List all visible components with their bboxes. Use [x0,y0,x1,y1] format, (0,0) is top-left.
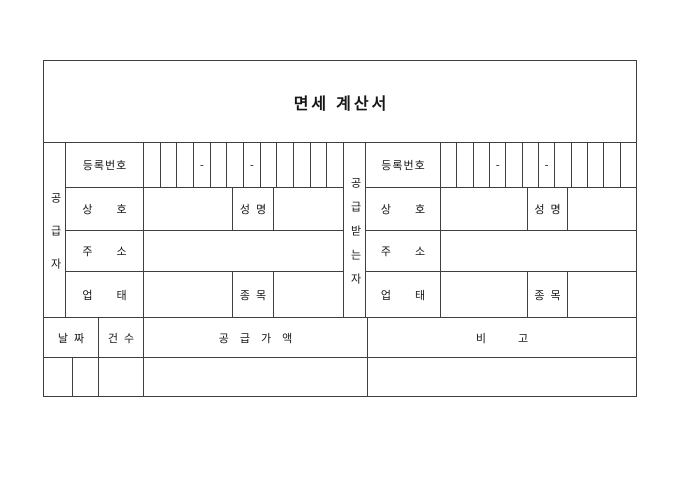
supplier-business-type-row: 업태 종목 [66,272,343,317]
recipient-address-row: 주소 [366,231,636,273]
supplier-trade-name-row: 상호 성명 [66,188,343,231]
supplier-business-type-label: 업태 [66,272,144,317]
reg-digit-cell[interactable] [505,143,521,187]
reg-digit-cell[interactable] [210,143,227,187]
supplier-section: 공급자 등록번호 -- 상호 성명 [44,143,344,317]
recipient-reg-number-label: 등록번호 [366,143,441,187]
reg-digit-cell[interactable] [554,143,570,187]
recipient-address-label: 주소 [366,231,441,272]
supplier-address-value[interactable] [144,231,343,272]
recipient-section: 공급받는자 등록번호 -- 상호 성명 [344,143,636,317]
date-column-header: 날짜 [44,318,99,357]
supplier-reg-number-label: 등록번호 [66,143,144,187]
supplier-item-value[interactable] [274,272,343,317]
reg-digit-cell[interactable] [441,143,456,187]
date-day-cell[interactable] [73,358,99,396]
supplier-name-label: 성명 [233,188,274,230]
reg-digit-dash-cell[interactable]: - [489,143,505,187]
supplier-reg-number-row: 등록번호 -- [66,143,343,188]
reg-digit-cell[interactable] [260,143,277,187]
recipient-side-label: 공급받는자 [349,177,360,297]
supplier-trade-name-value[interactable] [144,188,233,230]
reg-digit-dash-cell[interactable]: - [243,143,260,187]
recipient-side-label-cell: 공급받는자 [344,143,366,317]
reg-digit-cell[interactable] [587,143,603,187]
reg-digit-dash-cell[interactable]: - [193,143,210,187]
reg-digit-cell[interactable] [473,143,489,187]
supplier-name-value[interactable] [274,188,343,230]
count-column-header: 건수 [99,318,144,357]
supplier-side-label: 공급자 [49,192,60,291]
party-section: 공급자 등록번호 -- 상호 성명 [44,143,636,318]
recipient-item-label: 종목 [528,272,568,317]
reg-digit-cell[interactable] [276,143,293,187]
form-title-row: 면세 계산서 [44,61,636,143]
supplier-side-label-cell: 공급자 [44,143,66,317]
recipient-reg-number-row: 등록번호 -- [366,143,636,188]
recipient-business-type-value[interactable] [441,272,528,317]
recipient-trade-name-label: 상호 [366,188,441,230]
recipient-business-type-row: 업태 종목 [366,272,636,317]
supply-value-cell[interactable] [144,358,368,396]
supplier-address-label: 주소 [66,231,144,272]
reg-number-cells: -- [144,143,343,187]
recipient-trade-name-row: 상호 성명 [366,188,636,231]
supply-value-column-header: 공급가액 [144,318,368,357]
supplier-item-label: 종목 [233,272,274,317]
reg-digit-dash-cell[interactable]: - [538,143,554,187]
recipient-trade-name-value[interactable] [441,188,528,230]
reg-digit-cell[interactable] [226,143,243,187]
count-value-cell[interactable] [99,358,144,396]
reg-number-cells: -- [441,143,636,187]
reg-digit-cell[interactable] [326,143,343,187]
recipient-name-value[interactable] [568,188,636,230]
reg-digit-cell[interactable] [456,143,472,187]
form-title: 면세 계산서 [294,90,390,114]
summary-header-row: 날짜 건수 공급가액 비고 [44,318,636,358]
tax-exempt-invoice-form: 면세 계산서 공급자 등록번호 -- 상호 [43,60,637,397]
summary-data-row [44,358,636,396]
recipient-name-label: 성명 [528,188,568,230]
reg-digit-cell[interactable] [293,143,310,187]
reg-digit-cell[interactable] [571,143,587,187]
supplier-trade-name-label: 상호 [66,188,144,230]
reg-digit-cell[interactable] [603,143,619,187]
reg-digit-cell[interactable] [176,143,193,187]
reg-digit-cell[interactable] [310,143,327,187]
recipient-item-value[interactable] [568,272,636,317]
remarks-value-cell[interactable] [368,358,636,396]
recipient-business-type-label: 업태 [366,272,441,317]
date-month-cell[interactable] [44,358,73,396]
reg-digit-cell[interactable] [144,143,160,187]
supplier-address-row: 주소 [66,231,343,273]
reg-digit-cell[interactable] [160,143,177,187]
remarks-column-header: 비고 [368,318,636,357]
reg-digit-cell[interactable] [620,143,636,187]
supplier-business-type-value[interactable] [144,272,233,317]
reg-digit-cell[interactable] [522,143,538,187]
recipient-address-value[interactable] [441,231,636,272]
